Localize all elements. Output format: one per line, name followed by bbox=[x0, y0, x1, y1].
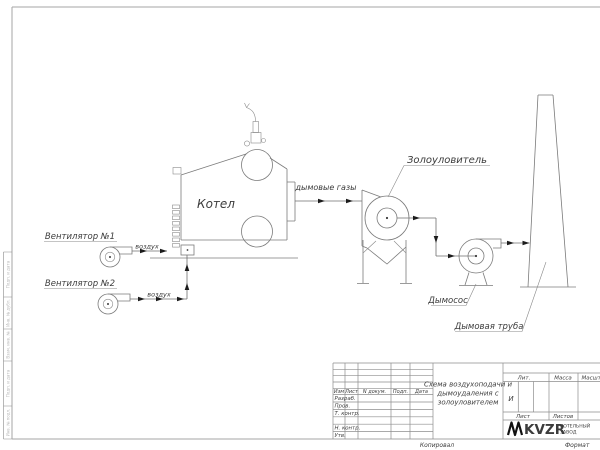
tb-row-nkontr: Н. контр. bbox=[335, 426, 361, 432]
tb-col-list: Лист bbox=[344, 389, 359, 395]
tb-org-line2: ЗАВОД bbox=[560, 430, 577, 436]
exhauster-label: Дымосос bbox=[427, 296, 468, 306]
smoke-exhauster: Дымосос bbox=[427, 239, 529, 306]
strip-label-3: Взам. инв. № bbox=[6, 331, 11, 358]
strip-label-1: Подп. и дата bbox=[6, 260, 11, 288]
boiler-corner-fitting bbox=[173, 168, 181, 175]
tb-title-line-1: Схема воздухоподачи и bbox=[424, 381, 513, 389]
tb-title-line-3: золоуловителем bbox=[438, 399, 500, 407]
strip-label-4: Подп. и дата bbox=[6, 369, 11, 397]
chimney: Дымовая труба bbox=[454, 95, 576, 332]
tb-lit-value: И bbox=[508, 395, 514, 403]
strip-label-5: Инв. № подл. bbox=[6, 409, 11, 437]
format-label: Формат bbox=[565, 442, 590, 449]
tb-row-prov: Пров. bbox=[335, 403, 351, 409]
tb-org-line1: КОТЕЛЬНЫЙ bbox=[560, 423, 590, 430]
boiler: Котел bbox=[150, 103, 298, 258]
tb-lit-header: Лит. bbox=[517, 376, 531, 382]
tb-row-tkontr: Т. контр. bbox=[335, 411, 360, 417]
strip-label-2: Инв. № дубл. bbox=[6, 299, 11, 326]
air1-label: воздух bbox=[135, 243, 159, 251]
safety-valve bbox=[244, 103, 265, 146]
flue-label: дымовые газы bbox=[295, 183, 357, 192]
fan1-label: Вентилятор №1 bbox=[45, 232, 115, 242]
tb-col-podp: Подп. bbox=[393, 389, 408, 395]
fan2-label: Вентилятор №2 bbox=[45, 279, 115, 289]
chimney-label: Дымовая труба bbox=[454, 322, 524, 332]
tb-scale-header: Масштаб bbox=[582, 376, 600, 382]
tb-col-data: Дата bbox=[414, 389, 428, 395]
ash-collector-label: Золоуловитель bbox=[407, 155, 487, 166]
tb-col-dokum: N докум. bbox=[363, 389, 386, 395]
boiler-upper-drum bbox=[242, 150, 273, 181]
boiler-lower-drum bbox=[242, 216, 273, 247]
air2-label: воздух bbox=[147, 291, 171, 299]
boiler-label: Котел bbox=[197, 197, 235, 211]
tb-col-izm: Изм bbox=[334, 389, 344, 395]
tb-sheet-label: Лист bbox=[515, 414, 531, 420]
tb-row-razrab: Разраб. bbox=[335, 396, 356, 402]
tb-title-line-2: дымоудаления с bbox=[436, 390, 499, 398]
boiler-ladder bbox=[173, 205, 180, 247]
title-block: Изм Лист N докум. Подп. Дата Разраб. Про… bbox=[333, 363, 600, 439]
frame-captions: Копировал Формат bbox=[420, 442, 590, 449]
drawing-sheet: Подп. и дата Инв. № дубл. Взам. инв. № П… bbox=[0, 0, 600, 450]
drawing-canvas: Подп. и дата Инв. № дубл. Взам. инв. № П… bbox=[0, 0, 600, 450]
tb-mass-header: Масса bbox=[554, 376, 572, 382]
kvzr-logo-icon bbox=[508, 423, 522, 436]
ash-collector: Золоуловитель bbox=[357, 155, 490, 284]
kvzr-logo: KVZR КОТЕЛЬНЫЙ ЗАВОД bbox=[508, 422, 590, 438]
kopiroval-label: Копировал bbox=[420, 442, 454, 449]
flue-gases-line: дымовые газы bbox=[295, 183, 362, 203]
fan-1: Вентилятор №1 воздух bbox=[44, 232, 167, 267]
sheet-frame bbox=[12, 7, 600, 439]
tb-row-utv: Утв. bbox=[335, 433, 346, 439]
side-strip: Подп. и дата Инв. № дубл. Взам. инв. № П… bbox=[4, 252, 13, 439]
tb-sheets-label: Листов bbox=[552, 414, 574, 420]
fan-2: Вентилятор №2 воздух bbox=[44, 255, 189, 314]
